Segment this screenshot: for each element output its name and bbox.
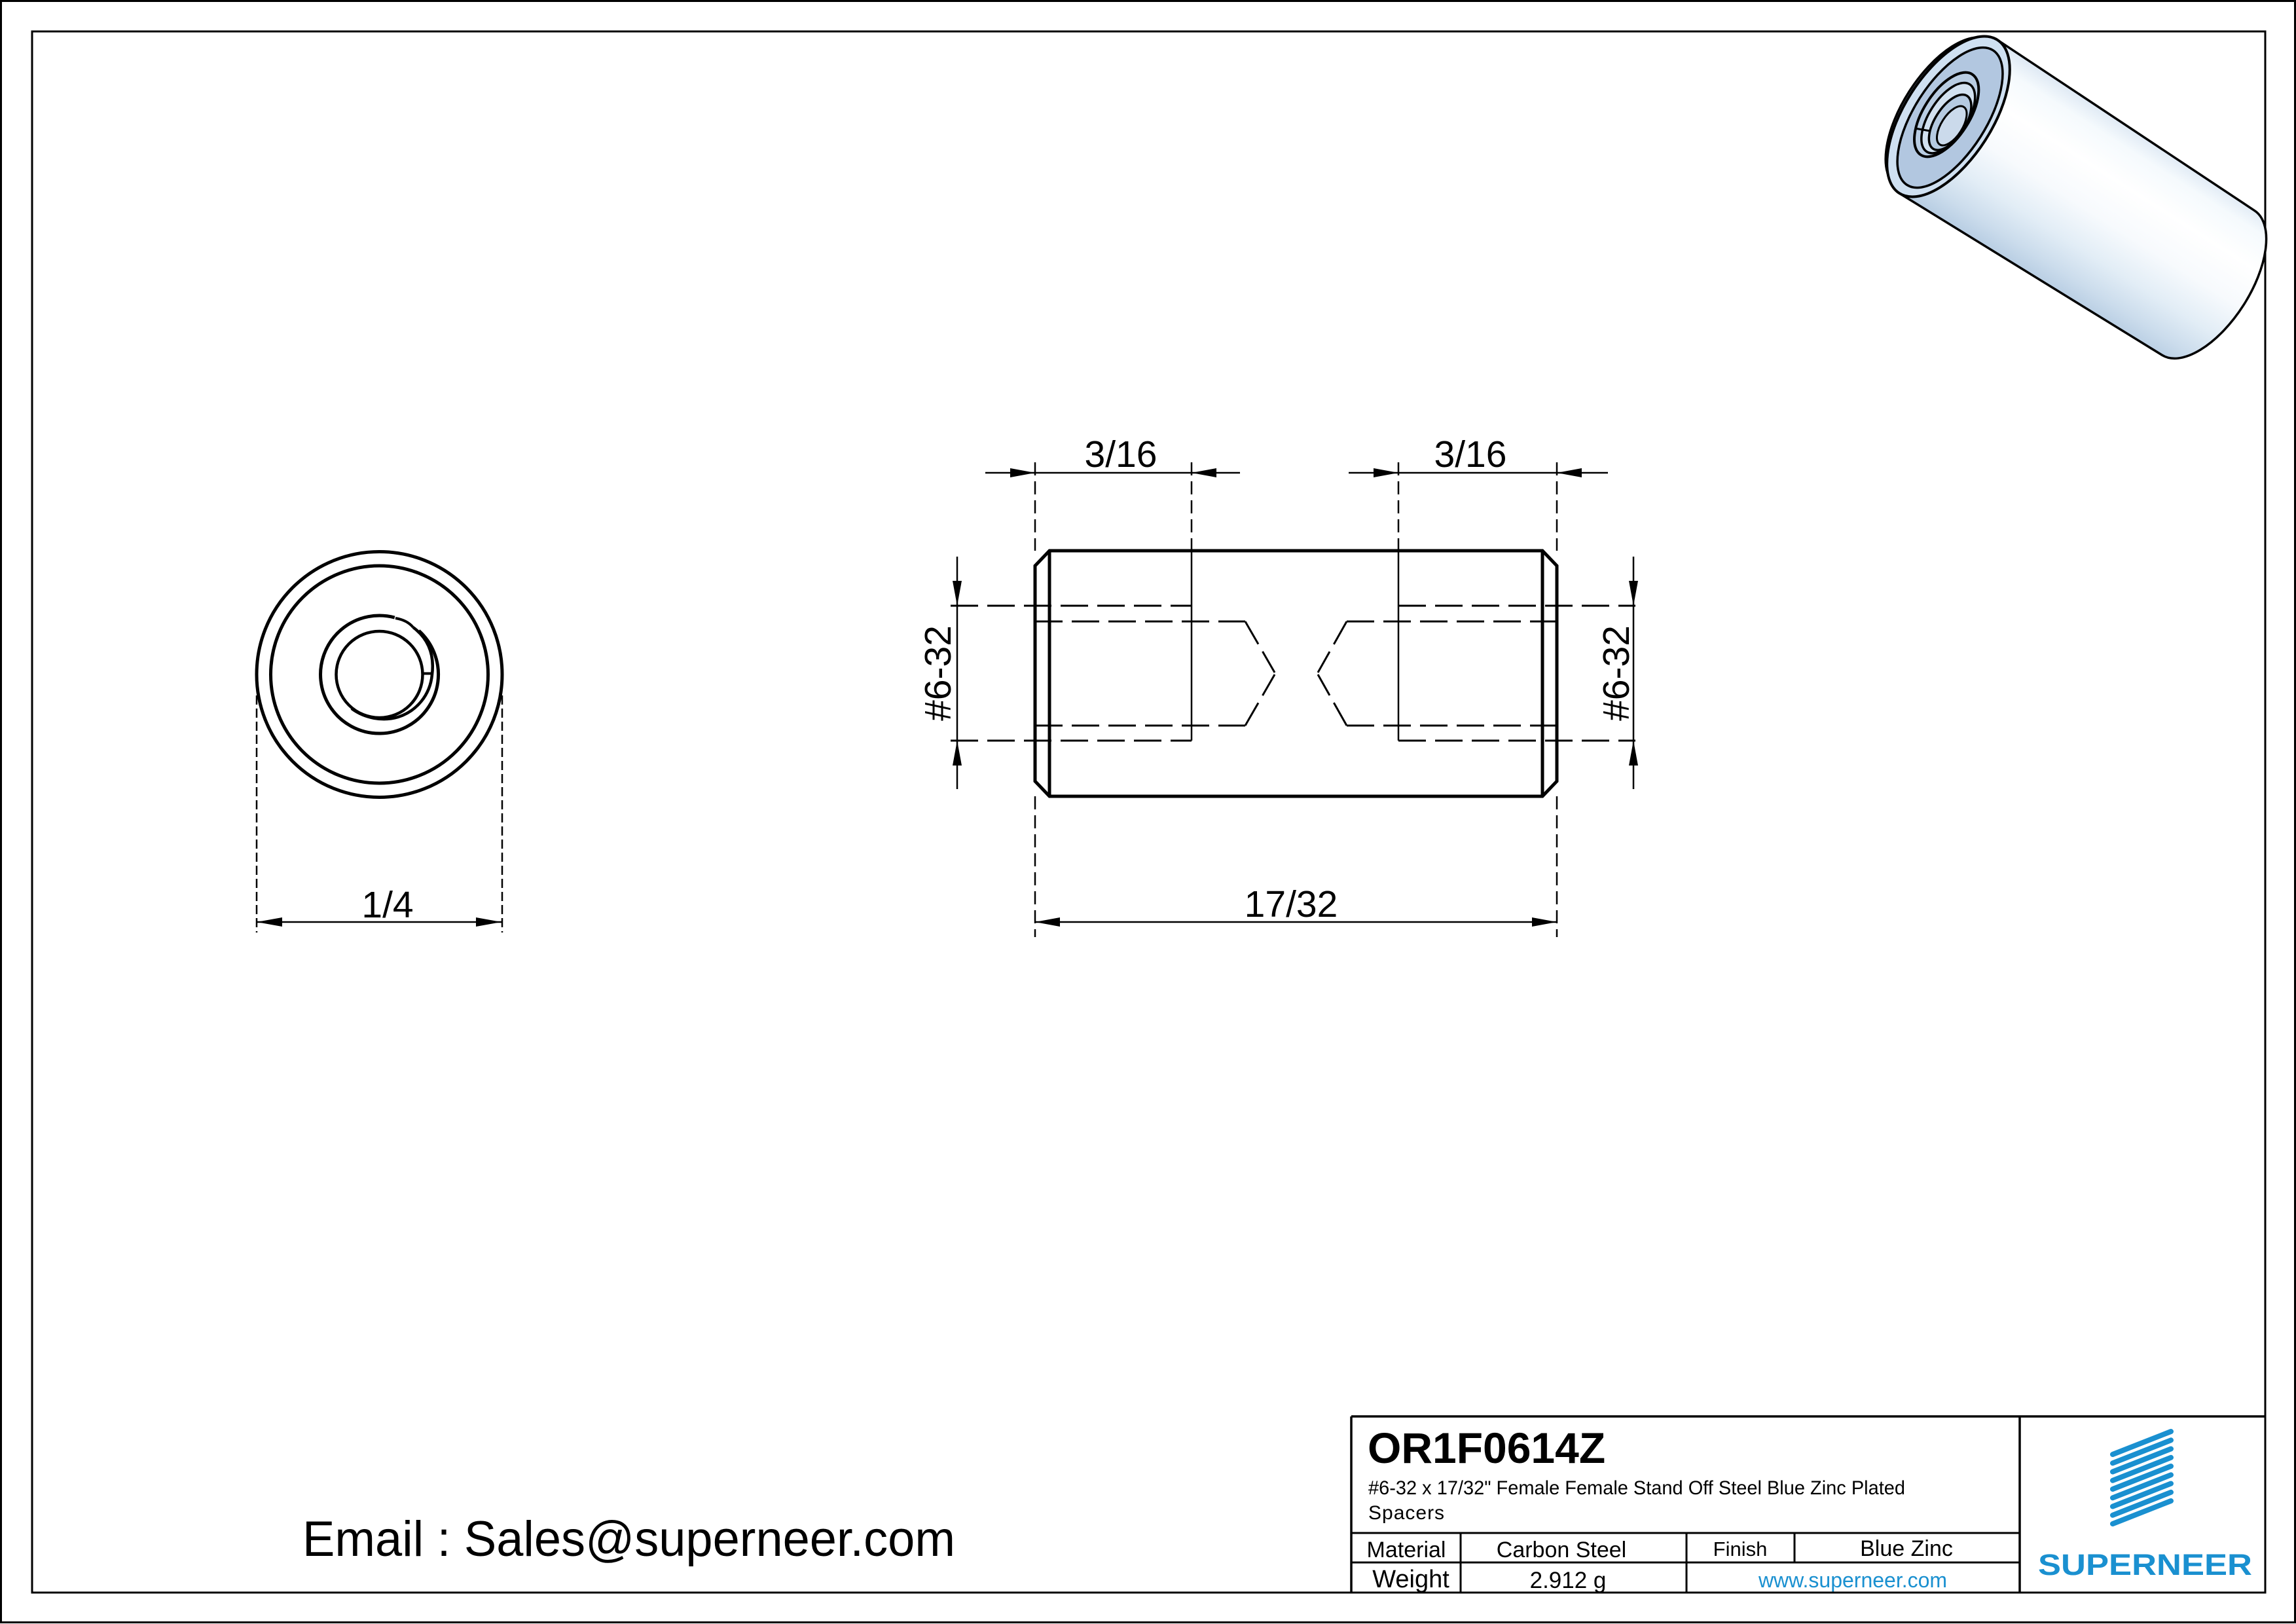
svg-text:#6-32 x 17/32" Female Female S: #6-32 x 17/32" Female Female Stand Off S…	[1368, 1477, 1905, 1499]
svg-text:SUPERNEER: SUPERNEER	[2038, 1548, 2252, 1581]
svg-text:OR1F0614Z: OR1F0614Z	[1368, 1424, 1605, 1472]
svg-text:2.912 g: 2.912 g	[1530, 1568, 1607, 1593]
svg-text:Spacers: Spacers	[1368, 1502, 1445, 1524]
svg-text:Email : Sales@superneer.com: Email : Sales@superneer.com	[302, 1511, 955, 1567]
svg-text:www.superneer.com: www.superneer.com	[1758, 1568, 1947, 1592]
svg-text:Finish: Finish	[1713, 1538, 1768, 1560]
svg-text:3/16: 3/16	[1434, 434, 1507, 475]
svg-text:#6-32: #6-32	[1595, 625, 1637, 721]
svg-text:Blue Zinc: Blue Zinc	[1860, 1536, 1953, 1561]
svg-text:17/32: 17/32	[1245, 883, 1338, 925]
svg-text:#6-32: #6-32	[917, 625, 959, 721]
svg-text:Carbon Steel: Carbon Steel	[1497, 1538, 1626, 1562]
svg-text:Material: Material	[1367, 1538, 1446, 1562]
svg-text:1/4: 1/4	[361, 884, 413, 926]
svg-text:3/16: 3/16	[1085, 434, 1157, 475]
svg-text:Weight: Weight	[1372, 1566, 1449, 1593]
